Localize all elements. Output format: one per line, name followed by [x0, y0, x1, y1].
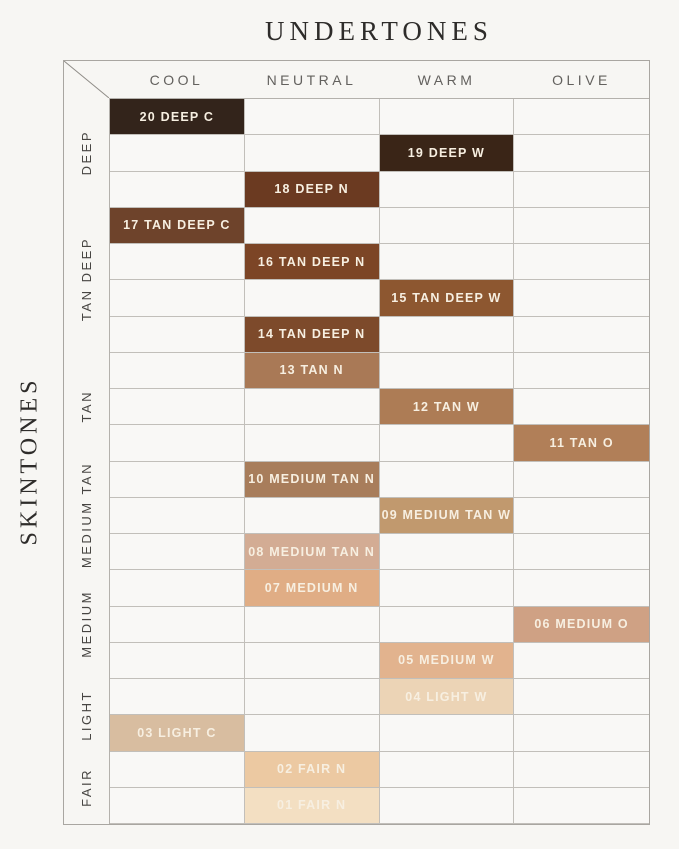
empty-grid-cell: [380, 317, 515, 353]
skintone-group-label: DEEP: [64, 98, 109, 207]
empty-grid-cell: [514, 570, 649, 606]
skintone-group-label-text: MEDIUM: [79, 590, 94, 658]
empty-grid-cell: [245, 99, 380, 135]
empty-grid-cell: [514, 135, 649, 171]
empty-grid-cell: [110, 135, 245, 171]
empty-grid-cell: [514, 208, 649, 244]
shade-cell: 10 MEDIUM TAN N: [245, 462, 380, 498]
shade-cell: 02 FAIR N: [245, 752, 380, 788]
skintone-group-label-text: TAN DEEP: [79, 237, 94, 321]
empty-grid-cell: [514, 280, 649, 316]
skintone-group-label: TAN: [64, 352, 109, 461]
shade-cell: 13 TAN N: [245, 353, 380, 389]
empty-grid-cell: [514, 679, 649, 715]
empty-grid-cell: [514, 534, 649, 570]
empty-grid-cell: [514, 353, 649, 389]
column-header: WARM: [379, 61, 514, 98]
shade-cell: 18 DEEP N: [245, 172, 380, 208]
empty-grid-cell: [514, 498, 649, 534]
column-header: NEUTRAL: [244, 61, 379, 98]
empty-grid-cell: [110, 788, 245, 824]
skintone-group-label-text: DEEP: [79, 130, 94, 175]
empty-grid-cell: [380, 425, 515, 461]
empty-grid-cell: [110, 570, 245, 606]
empty-grid-cell: [514, 99, 649, 135]
empty-grid-cell: [380, 353, 515, 389]
empty-grid-cell: [380, 534, 515, 570]
empty-grid-cell: [380, 462, 515, 498]
empty-grid-cell: [110, 498, 245, 534]
shade-cell: 04 LIGHT W: [380, 679, 515, 715]
shade-cell: 07 MEDIUM N: [245, 570, 380, 606]
shade-cell: 14 TAN DEEP N: [245, 317, 380, 353]
empty-grid-cell: [110, 244, 245, 280]
empty-grid-cell: [110, 534, 245, 570]
empty-grid-cell: [380, 208, 515, 244]
shade-grid: 20 DEEP C19 DEEP W18 DEEP N17 TAN DEEP C…: [109, 98, 649, 824]
shade-cell: 15 TAN DEEP W: [380, 280, 515, 316]
skintone-group-strip: DEEPTAN DEEPTANMEDIUM TANMEDIUMLIGHTFAIR: [64, 98, 109, 824]
skintone-group-label: TAN DEEP: [64, 207, 109, 352]
skintone-group-label-text: FAIR: [79, 768, 94, 807]
empty-grid-cell: [245, 679, 380, 715]
empty-grid-cell: [110, 389, 245, 425]
empty-grid-cell: [380, 99, 515, 135]
side-title: SKINTONES: [17, 377, 44, 546]
skintone-group-label-text: LIGHT: [79, 690, 94, 741]
shade-cell: 05 MEDIUM W: [380, 643, 515, 679]
page-title: UNDERTONES: [108, 16, 650, 47]
shade-cell: 06 MEDIUM O: [514, 607, 649, 643]
corner-cell: [64, 61, 109, 98]
column-header: COOL: [109, 61, 244, 98]
skintone-group-label: MEDIUM: [64, 570, 109, 679]
empty-grid-cell: [110, 172, 245, 208]
empty-grid-cell: [110, 643, 245, 679]
shade-cell: 17 TAN DEEP C: [110, 208, 245, 244]
empty-grid-cell: [514, 752, 649, 788]
shade-cell: 12 TAN W: [380, 389, 515, 425]
empty-grid-cell: [380, 570, 515, 606]
empty-grid-cell: [514, 317, 649, 353]
empty-grid-cell: [380, 788, 515, 824]
empty-grid-cell: [110, 280, 245, 316]
empty-grid-cell: [110, 462, 245, 498]
empty-grid-cell: [380, 752, 515, 788]
diagonal-divider-line: [64, 61, 109, 98]
empty-grid-cell: [245, 389, 380, 425]
shade-cell: 09 MEDIUM TAN W: [380, 498, 515, 534]
empty-grid-cell: [110, 607, 245, 643]
empty-grid-cell: [110, 353, 245, 389]
shade-cell: 03 LIGHT C: [110, 715, 245, 751]
shade-cell: 01 FAIR N: [245, 788, 380, 824]
empty-grid-cell: [380, 172, 515, 208]
empty-grid-cell: [380, 244, 515, 280]
empty-grid-cell: [110, 679, 245, 715]
empty-grid-cell: [245, 280, 380, 316]
empty-grid-cell: [514, 389, 649, 425]
shade-chart: COOLNEUTRALWARMOLIVE DEEPTAN DEEPTANMEDI…: [63, 60, 650, 825]
column-headers: COOLNEUTRALWARMOLIVE: [64, 61, 649, 98]
empty-grid-cell: [110, 425, 245, 461]
empty-grid-cell: [514, 643, 649, 679]
skintone-group-label: FAIR: [64, 751, 109, 824]
empty-grid-cell: [380, 715, 515, 751]
empty-grid-cell: [245, 643, 380, 679]
empty-grid-cell: [245, 715, 380, 751]
empty-grid-cell: [514, 462, 649, 498]
empty-grid-cell: [514, 244, 649, 280]
empty-grid-cell: [514, 788, 649, 824]
empty-grid-cell: [245, 135, 380, 171]
empty-grid-cell: [245, 607, 380, 643]
skintone-group-label: LIGHT: [64, 679, 109, 752]
skintone-group-label-text: TAN: [79, 390, 94, 423]
empty-grid-cell: [110, 317, 245, 353]
skintone-group-label-text: MEDIUM TAN: [79, 462, 94, 568]
column-header: OLIVE: [514, 61, 649, 98]
shade-cell: 20 DEEP C: [110, 99, 245, 135]
shade-cell: 08 MEDIUM TAN N: [245, 534, 380, 570]
empty-grid-cell: [245, 208, 380, 244]
empty-grid-cell: [514, 172, 649, 208]
empty-grid-cell: [245, 498, 380, 534]
empty-grid-cell: [110, 752, 245, 788]
empty-grid-cell: [245, 425, 380, 461]
empty-grid-cell: [380, 607, 515, 643]
skintone-group-label: MEDIUM TAN: [64, 461, 109, 570]
shade-cell: 11 TAN O: [514, 425, 649, 461]
empty-grid-cell: [514, 715, 649, 751]
shade-cell: 19 DEEP W: [380, 135, 515, 171]
shade-cell: 16 TAN DEEP N: [245, 244, 380, 280]
